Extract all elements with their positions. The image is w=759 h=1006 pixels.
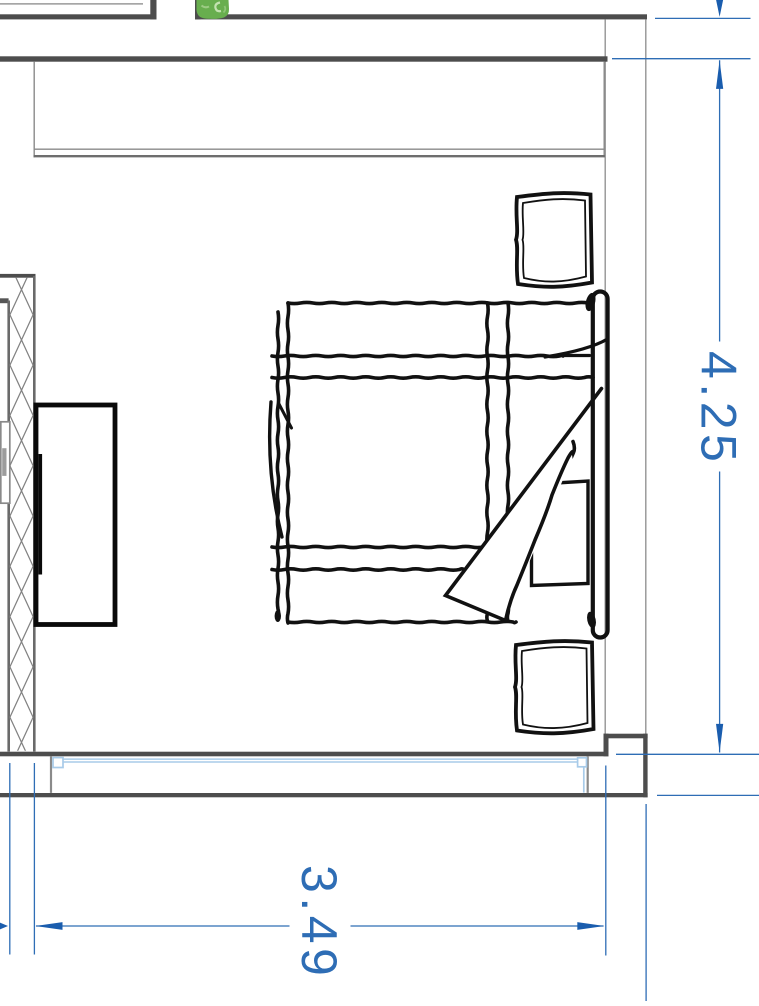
svg-text:3.49: 3.49 bbox=[291, 865, 347, 980]
svg-text:4.25: 4.25 bbox=[691, 351, 747, 466]
